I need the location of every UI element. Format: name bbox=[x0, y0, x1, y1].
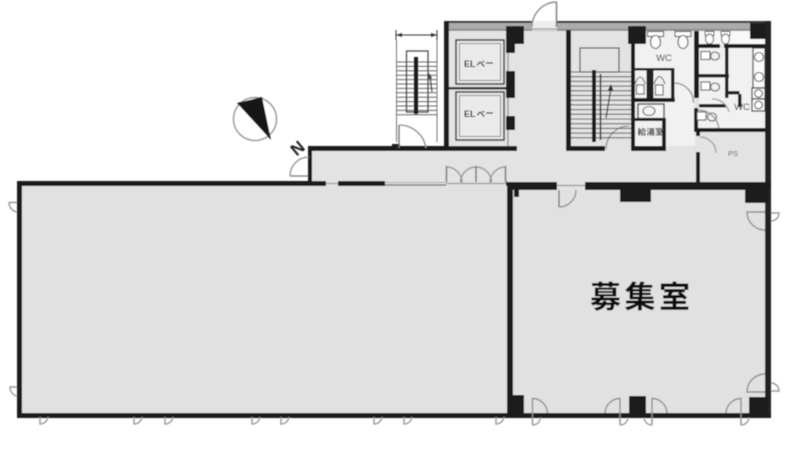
svg-text:EL: EL bbox=[464, 109, 476, 119]
svg-text:PS: PS bbox=[728, 149, 738, 158]
svg-text:WC: WC bbox=[656, 53, 672, 64]
svg-text:WC: WC bbox=[734, 102, 750, 113]
svg-text:EL: EL bbox=[464, 59, 476, 69]
